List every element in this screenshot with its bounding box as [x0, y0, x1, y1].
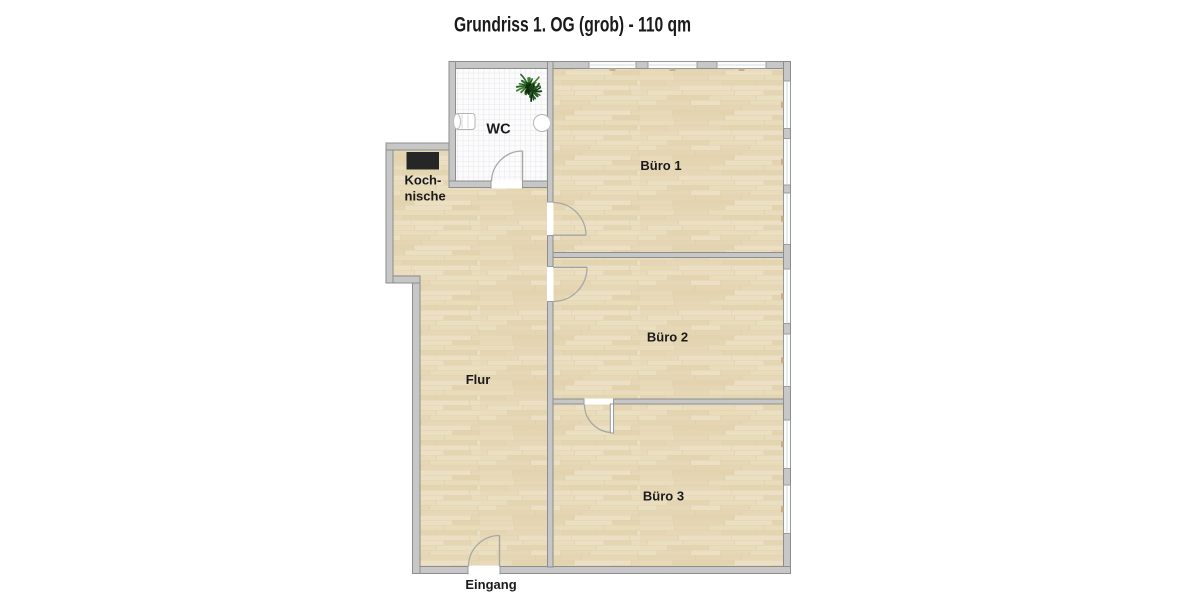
svg-text:Büro 2: Büro 2 [647, 330, 688, 345]
svg-text:Flur: Flur [466, 372, 491, 387]
svg-text:nische: nische [405, 188, 446, 203]
svg-text:Eingang: Eingang [465, 577, 516, 592]
svg-text:Büro 1: Büro 1 [640, 158, 681, 173]
svg-text:Grundriss 1. OG (grob) - 110 q: Grundriss 1. OG (grob) - 110 qm [454, 14, 691, 37]
svg-text:WC: WC [486, 122, 511, 138]
svg-text:Büro 3: Büro 3 [643, 489, 684, 504]
svg-text:Koch-: Koch- [405, 172, 442, 187]
